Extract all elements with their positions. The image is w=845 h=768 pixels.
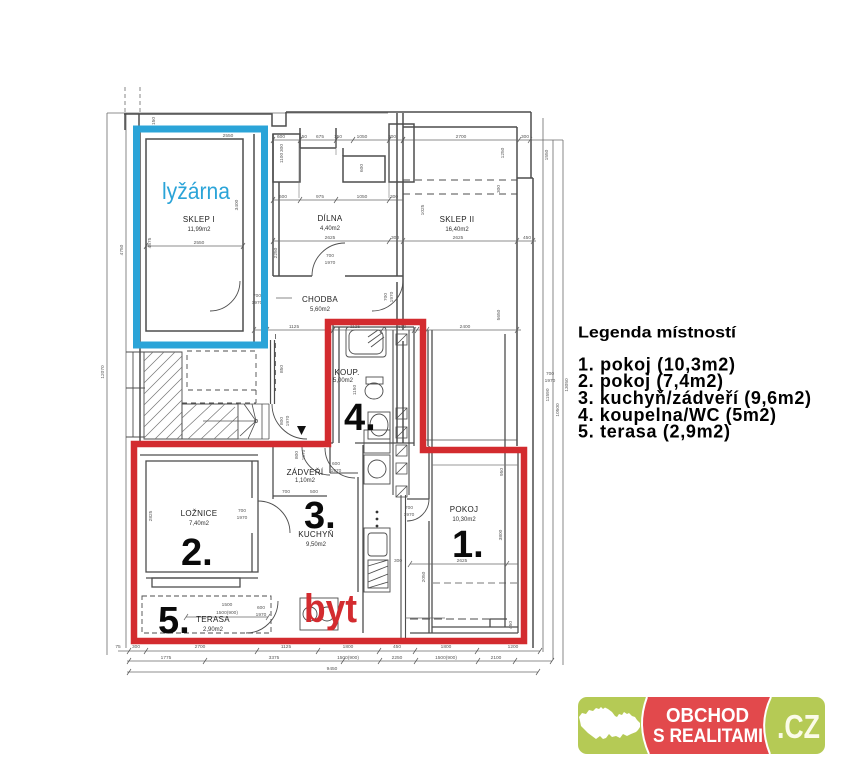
svg-text:1970: 1970	[256, 612, 267, 618]
svg-text:3800: 3800	[498, 529, 504, 540]
svg-text:5,60m2: 5,60m2	[310, 307, 331, 313]
svg-text:600: 600	[277, 134, 285, 140]
svg-text:5650: 5650	[496, 309, 502, 320]
svg-text:300: 300	[279, 144, 285, 152]
svg-text:10500: 10500	[555, 403, 561, 417]
svg-text:700: 700	[383, 293, 389, 301]
svg-text:10,30m2: 10,30m2	[452, 517, 476, 523]
svg-text:byt: byt	[304, 587, 357, 631]
svg-text:700: 700	[326, 253, 334, 259]
svg-text:700: 700	[546, 371, 554, 377]
svg-text:1025: 1025	[420, 204, 426, 215]
svg-text:450: 450	[508, 621, 514, 629]
svg-text:2625: 2625	[325, 235, 336, 241]
svg-text:lyžárna: lyžárna	[162, 178, 230, 204]
svg-text:300: 300	[496, 185, 502, 193]
svg-text:150: 150	[299, 134, 307, 140]
svg-text:3375: 3375	[269, 655, 280, 661]
svg-text:700: 700	[282, 489, 290, 495]
svg-text:1970: 1970	[545, 378, 556, 384]
svg-text:4,40m2: 4,40m2	[320, 226, 341, 232]
svg-text:1150: 1150	[352, 385, 358, 396]
svg-text:5,00m2: 5,00m2	[333, 378, 354, 384]
svg-text:12070: 12070	[100, 365, 106, 379]
svg-text:1970: 1970	[237, 515, 248, 521]
svg-text:600: 600	[359, 164, 365, 172]
svg-text:150: 150	[151, 117, 157, 125]
svg-text:4750: 4750	[119, 244, 125, 255]
svg-text:2550: 2550	[223, 133, 234, 139]
svg-text:2550: 2550	[194, 240, 205, 246]
svg-text:9,50m2: 9,50m2	[306, 542, 327, 548]
svg-text:1970: 1970	[325, 260, 336, 266]
svg-text:3.: 3.	[304, 495, 336, 537]
svg-text:2.: 2.	[181, 532, 213, 574]
svg-text:2100: 2100	[491, 655, 502, 661]
svg-text:2250: 2250	[392, 655, 403, 661]
svg-text:950: 950	[499, 468, 505, 476]
svg-text:300: 300	[521, 134, 529, 140]
svg-text:1800: 1800	[343, 644, 354, 650]
svg-text:Legenda místností: Legenda místností	[578, 325, 737, 342]
svg-text:KOUP.: KOUP.	[334, 368, 359, 377]
svg-text:2250: 2250	[273, 247, 279, 258]
svg-text:1970: 1970	[331, 468, 342, 474]
svg-text:1100: 1100	[279, 153, 285, 164]
svg-text:.CZ: .CZ	[777, 708, 820, 745]
svg-text:5.: 5.	[158, 600, 190, 642]
svg-text:800: 800	[279, 417, 285, 425]
svg-text:SKLEP I: SKLEP I	[183, 215, 215, 224]
svg-text:675: 675	[316, 134, 324, 140]
svg-text:4.: 4.	[344, 397, 376, 439]
svg-text:1250: 1250	[500, 147, 506, 158]
svg-text:1800: 1800	[441, 644, 452, 650]
svg-text:2,90m2: 2,90m2	[203, 627, 224, 633]
svg-text:1500: 1500	[222, 602, 233, 608]
svg-text:600: 600	[257, 605, 265, 611]
svg-text:7,40m2: 7,40m2	[189, 521, 210, 527]
svg-text:1970: 1970	[301, 449, 307, 460]
svg-text:1500(900): 1500(900)	[337, 655, 359, 661]
svg-text:700: 700	[238, 508, 246, 514]
svg-text:300: 300	[394, 558, 402, 564]
svg-text:1050: 1050	[357, 134, 368, 140]
svg-text:600: 600	[332, 461, 340, 467]
svg-text:11,99m2: 11,99m2	[188, 227, 212, 233]
svg-text:2050: 2050	[421, 571, 427, 582]
svg-text:DÍLNA: DÍLNA	[317, 214, 342, 223]
svg-text:300: 300	[132, 644, 140, 650]
svg-text:2400: 2400	[460, 324, 471, 330]
svg-text:TERASA: TERASA	[196, 615, 230, 624]
svg-text:13050: 13050	[564, 378, 570, 392]
svg-text:700: 700	[405, 505, 413, 511]
svg-text:SKLEP II: SKLEP II	[440, 215, 475, 224]
svg-text:1125: 1125	[289, 324, 300, 330]
svg-text:450: 450	[393, 644, 401, 650]
svg-text:1970: 1970	[285, 415, 291, 426]
svg-text:5. terasa (2,9m2): 5. terasa (2,9m2)	[578, 422, 730, 442]
svg-text:4575: 4575	[147, 237, 153, 248]
svg-text:800: 800	[294, 451, 300, 459]
svg-text:975: 975	[316, 194, 324, 200]
svg-text:ZÁDVEŘÍ: ZÁDVEŘÍ	[287, 468, 324, 477]
svg-text:1,10m2: 1,10m2	[295, 478, 316, 484]
svg-text:850: 850	[279, 365, 285, 373]
svg-text:700: 700	[253, 293, 261, 299]
svg-text:1970: 1970	[404, 512, 415, 518]
svg-text:75: 75	[115, 644, 121, 650]
svg-text:1200: 1200	[508, 644, 519, 650]
svg-text:600: 600	[279, 194, 287, 200]
svg-text:1550: 1550	[544, 149, 550, 160]
svg-text:POKOJ: POKOJ	[450, 505, 479, 514]
svg-text:300: 300	[391, 235, 399, 241]
svg-text:CHODBA: CHODBA	[302, 295, 338, 304]
svg-text:16,40m2: 16,40m2	[445, 227, 469, 233]
svg-text:9450: 9450	[327, 666, 338, 672]
svg-text:300: 300	[390, 194, 398, 200]
svg-text:11590: 11590	[545, 388, 551, 401]
svg-text:1125: 1125	[281, 644, 292, 650]
svg-text:2700: 2700	[456, 134, 467, 140]
svg-text:300: 300	[388, 134, 396, 140]
svg-text:1.: 1.	[452, 524, 484, 566]
svg-text:2625: 2625	[453, 235, 464, 241]
svg-text:3400: 3400	[234, 199, 240, 210]
svg-text:LOŽNICE: LOŽNICE	[181, 509, 218, 518]
svg-text:1500(900): 1500(900)	[435, 655, 457, 661]
svg-text:1775: 1775	[161, 655, 172, 661]
svg-text:1970: 1970	[389, 291, 395, 302]
svg-text:2700: 2700	[195, 644, 206, 650]
svg-text:2825: 2825	[148, 510, 154, 521]
svg-text:450: 450	[523, 235, 531, 241]
svg-text:S REALITAMI: S REALITAMI	[653, 725, 763, 747]
svg-text:150: 150	[334, 134, 342, 140]
svg-text:OBCHOD: OBCHOD	[666, 705, 749, 727]
svg-text:1050: 1050	[357, 194, 368, 200]
